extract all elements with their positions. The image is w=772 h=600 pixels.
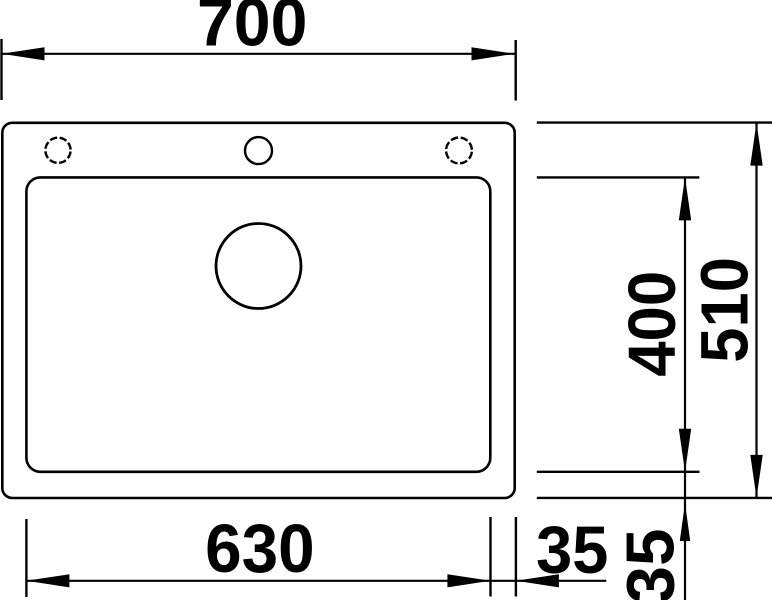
- svg-text:700: 700: [197, 0, 307, 61]
- svg-text:400: 400: [615, 271, 690, 377]
- svg-text:35: 35: [536, 513, 609, 588]
- svg-text:510: 510: [688, 257, 763, 363]
- svg-text:630: 630: [205, 510, 315, 587]
- svg-text:35: 35: [614, 529, 689, 600]
